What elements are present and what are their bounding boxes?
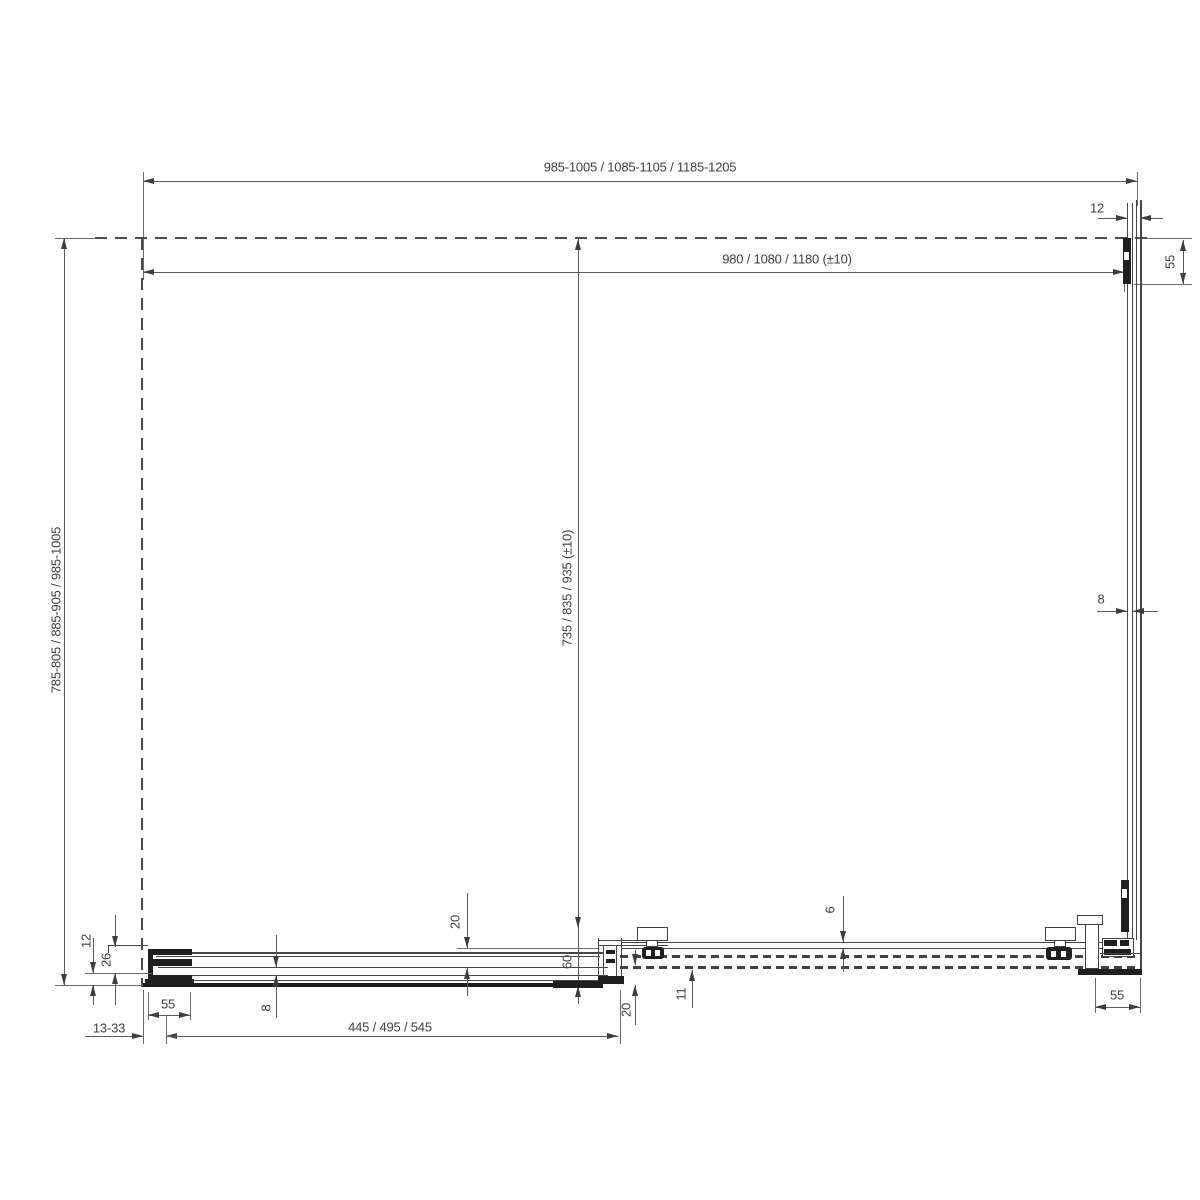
technical-drawing: 985-1005 / 1085-1105 / 1185-1205 980 / 1… [0, 0, 1200, 1200]
arrow-left-icon [143, 269, 154, 275]
fixed-glass-end-seal [553, 981, 603, 988]
extension-line [1137, 172, 1138, 206]
side-glass-edge [1127, 203, 1128, 940]
dim-glass-depth: 735 / 835 / 935 (±10) [560, 530, 575, 646]
arrow-up-icon [575, 239, 581, 250]
arrow-left-icon [148, 1012, 159, 1018]
glass-clamp [152, 959, 192, 966]
extension-line [1134, 284, 1192, 285]
arrow-up-icon [90, 985, 96, 996]
corner-bracket-detail [1104, 949, 1131, 955]
arrow-down-icon [575, 917, 581, 928]
arrow-right-icon [179, 1012, 190, 1018]
extension-line [55, 985, 143, 986]
roller-stem [1054, 940, 1066, 947]
dim-wall-bracket-bottom-right: 55 [1110, 988, 1124, 1003]
wall-bracket-slot [1124, 252, 1129, 260]
corner-bottom-thick [1078, 969, 1142, 975]
wall-profile-left-top [148, 949, 192, 955]
wall-dashed-line-left [141, 238, 143, 987]
dim-glass-width: 980 / 1080 / 1180 (±10) [722, 252, 852, 267]
arrow-down-icon [1180, 273, 1186, 284]
corner-bracket-detail [1104, 940, 1117, 946]
dim-bottom-profile-depth: 26 [99, 953, 114, 967]
arrow-down-icon [464, 937, 470, 948]
extension-line [143, 990, 144, 1044]
roller-slot [655, 950, 660, 956]
dim-line-overall-width [143, 181, 1137, 182]
fixed-glass-edge [158, 975, 608, 976]
arrow-down-icon [61, 974, 67, 985]
arrow-up-icon [112, 973, 118, 984]
door-glass-edge [622, 942, 1108, 943]
extension-line [190, 992, 191, 1020]
door-stopper-stem [1085, 924, 1099, 969]
profile-step-line [108, 945, 109, 953]
dim-wall-bracket-top: 55 [1163, 255, 1178, 269]
extension-line [85, 973, 152, 974]
arrow-right-icon [1116, 608, 1127, 614]
arrow-left-icon [1095, 1004, 1106, 1010]
arrow-left-icon [143, 178, 154, 184]
roller-slot [1061, 951, 1066, 957]
arrow-right-icon [132, 1033, 143, 1039]
fixed-glass-edge [158, 967, 608, 968]
dim-side-glass-thickness: 8 [1097, 592, 1104, 607]
arrow-up-icon [61, 238, 67, 249]
wall-dashed-line-top [95, 237, 1153, 239]
dim-line [166, 1036, 618, 1037]
glass-clamp [152, 975, 192, 981]
dim-rail-offset: 11 [674, 987, 689, 1000]
wall-profile-inner-edge [1136, 200, 1137, 940]
arrow-right-icon [1116, 215, 1127, 221]
extension-line [457, 948, 598, 949]
arrow-up-icon [632, 985, 638, 996]
arrow-up-icon [273, 975, 279, 986]
roller-slot [1051, 951, 1056, 957]
dim-bottom-gap: 20 [619, 1003, 634, 1017]
dim-fixed-panel-length: 445 / 495 / 545 [348, 1020, 432, 1035]
arrow-up-icon [840, 948, 846, 959]
roller-slot [646, 950, 651, 956]
holder-screw [606, 950, 615, 954]
arrow-up-icon [464, 968, 470, 979]
dim-wall-bracket-bottom-left: 55 [161, 997, 175, 1012]
top-rail-line [156, 956, 600, 957]
arrow-right-icon [1129, 1004, 1140, 1010]
arrow-up-icon [1180, 240, 1186, 251]
arrow-down-icon [840, 931, 846, 942]
corner-rail-line [1100, 953, 1141, 954]
dim-adjustment-range: 13-33 [93, 1021, 125, 1036]
extension-line [1140, 978, 1141, 1013]
arrow-right-icon [1126, 178, 1137, 184]
roller-right [1046, 947, 1072, 960]
dim-fixed-glass-thickness: 8 [259, 1004, 274, 1011]
wall-profile-outer-edge [1140, 200, 1142, 975]
door-glass-edge [622, 948, 1108, 949]
arrow-left-icon [1133, 608, 1144, 614]
wall-bracket-slot [1122, 889, 1127, 898]
door-holder-foot [598, 976, 624, 984]
extension-line [166, 1016, 167, 1044]
dim-overall-depth: 785-805 / 885-905 / 985-1005 [49, 527, 64, 693]
arrow-down-icon [632, 954, 638, 965]
hidden-rail-dashed [620, 966, 1141, 969]
dim-door-glass-thickness: 6 [823, 906, 838, 913]
dim-wall-profile-offset: 12 [1090, 201, 1104, 216]
dim-line-overall-depth [64, 238, 65, 985]
door-holder-edge [603, 945, 604, 976]
dim-line-glass-width [143, 272, 1124, 273]
dim-panel-gap: 20 [448, 915, 463, 929]
top-rail-line [148, 952, 603, 954]
roller-carriage-left [637, 927, 668, 941]
dim-line-glass-depth [578, 238, 579, 1004]
wall-bracket-top [1123, 238, 1131, 284]
bottom-rail-thick [143, 983, 603, 987]
holder-screw [606, 959, 615, 963]
door-holder-edge [616, 945, 617, 976]
roller-stem [646, 940, 658, 947]
wall-bracket-bottom [1121, 880, 1129, 932]
arrow-right-icon [607, 1033, 618, 1039]
arrow-down-icon [273, 956, 279, 967]
arrow-down-icon [112, 936, 118, 947]
arrow-down-icon [90, 962, 96, 973]
roller-carriage-right [1045, 927, 1076, 941]
dim-overall-width: 985-1005 / 1085-1105 / 1185-1205 [544, 160, 737, 175]
bottom-rail-line [148, 980, 603, 981]
extension-line [143, 172, 144, 280]
corner-bracket-detail [1120, 940, 1129, 946]
dim-bottom-profile-height: 12 [79, 934, 94, 948]
side-glass-edge [1132, 203, 1133, 940]
arrow-up-icon [689, 970, 695, 981]
